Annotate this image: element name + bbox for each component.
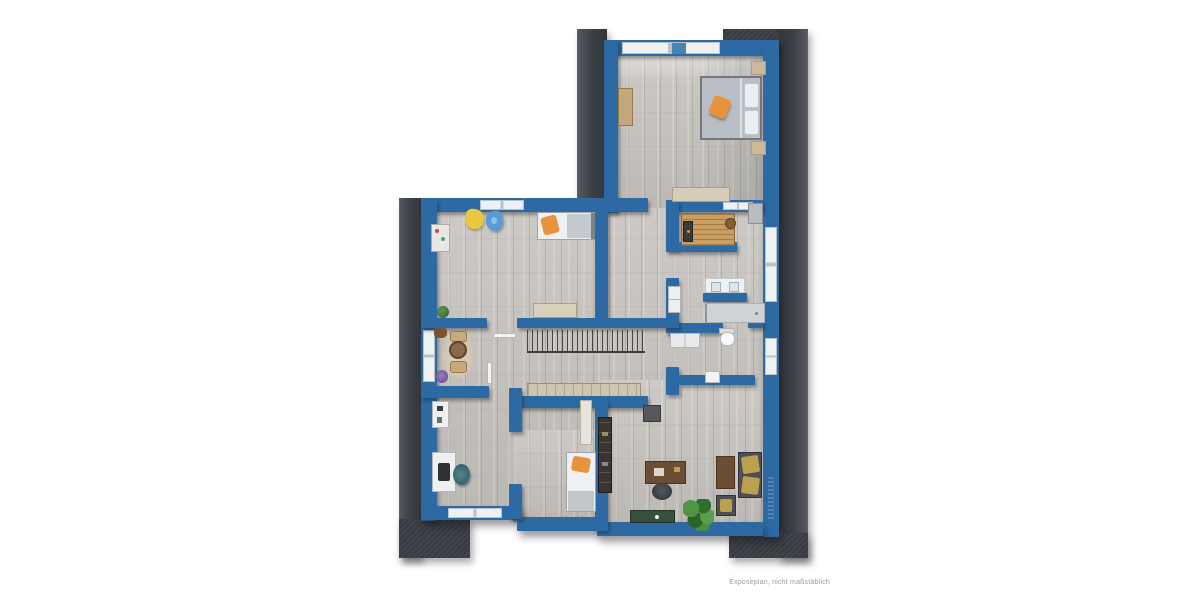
sink-left [711, 282, 721, 292]
green-bench [630, 510, 675, 523]
room-bathroom [666, 252, 766, 332]
chaise-cushion-1 [741, 455, 760, 474]
shelf-toy-red [435, 229, 439, 233]
bench-mug [655, 515, 659, 519]
room-kids [433, 208, 595, 318]
blue-cushion [485, 210, 504, 232]
nightstand-top [751, 61, 766, 75]
shelf-toy-green [441, 237, 445, 241]
window-right-lower [765, 338, 777, 375]
wc-sink [705, 371, 720, 383]
purple-plant [436, 370, 448, 383]
monstera-plant [683, 499, 714, 531]
room-sitting [433, 304, 513, 388]
toilet [720, 332, 735, 346]
ottoman [716, 495, 736, 516]
kids-bed-headboard [591, 213, 595, 239]
orange-cushion [708, 94, 732, 119]
room-living [608, 385, 764, 525]
vanity-knee-wall [703, 293, 747, 302]
kids-bed [537, 212, 595, 240]
nightstand-bottom [751, 141, 766, 155]
room-sauna [679, 212, 763, 252]
cat-tree-bottom [450, 361, 467, 373]
washer-dryer [670, 333, 700, 348]
bed2-blanket [568, 491, 594, 511]
wall-stairwell-top [517, 318, 679, 328]
disclaimer-text: Exposeplan, nicht maßstäblich [700, 579, 830, 586]
room-wc-laundry [666, 328, 766, 386]
chaise-lounge [738, 452, 762, 498]
side-table-item-2 [437, 417, 442, 423]
blue-cushion-center [491, 217, 498, 225]
chaise-cushion-2 [741, 476, 760, 495]
double-vanity [705, 278, 745, 293]
bed2-pillow [571, 456, 591, 474]
roof-panel-right [779, 29, 808, 558]
room-office [433, 398, 511, 508]
office-side-table [432, 401, 449, 428]
sauna-heater [683, 221, 693, 242]
washing-machine-stack [668, 286, 681, 313]
shower-floor [705, 303, 765, 323]
sauna-bucket [725, 218, 736, 229]
kids-wall-shelf [431, 224, 450, 252]
tv-board [643, 405, 661, 422]
living-cabinet [716, 456, 735, 489]
window-office-bottom [448, 508, 502, 518]
living-chair [652, 483, 672, 500]
kids-bed-pillow [540, 214, 560, 235]
potted-plant [437, 306, 449, 318]
laptop [438, 463, 450, 481]
window-right-upper [765, 227, 777, 302]
kids-dresser [533, 303, 577, 318]
pouf [434, 327, 447, 338]
roof-panel-bottom-left [399, 519, 470, 558]
bed2 [566, 452, 596, 512]
sideboard-wing [672, 187, 730, 202]
sauna-corner-cabinet [748, 203, 763, 224]
bed-pillow-2 [744, 110, 759, 135]
shower-drain [755, 312, 758, 315]
kids-bed-blanket [567, 214, 591, 238]
heater-glow [687, 230, 690, 233]
vertical-watermark [768, 477, 774, 519]
wall-kids-hall-divider [595, 212, 608, 318]
room-bedroom-top [604, 40, 779, 215]
wardrobe-wing [618, 88, 633, 126]
yellow-cushion [464, 208, 486, 230]
stair-railing-balusters [527, 330, 645, 353]
cat-tree [449, 341, 467, 359]
floor-plan-canvas: Exposeplan, nicht maßstäblich [0, 0, 1200, 600]
roof-panel-top-strip [577, 29, 607, 200]
desk-gold-item [674, 467, 680, 472]
desk-paper [654, 468, 664, 476]
duvet-fold [740, 78, 742, 138]
side-table-item-1 [437, 406, 443, 411]
office-chair [453, 464, 470, 485]
ottoman-cushion [720, 499, 732, 512]
bed-pillow-1 [744, 83, 759, 108]
double-bed [700, 76, 762, 140]
living-desk [645, 461, 686, 484]
sink-right [729, 282, 739, 292]
roof-panel-left [399, 198, 421, 558]
room-bedroom2 [522, 408, 602, 520]
